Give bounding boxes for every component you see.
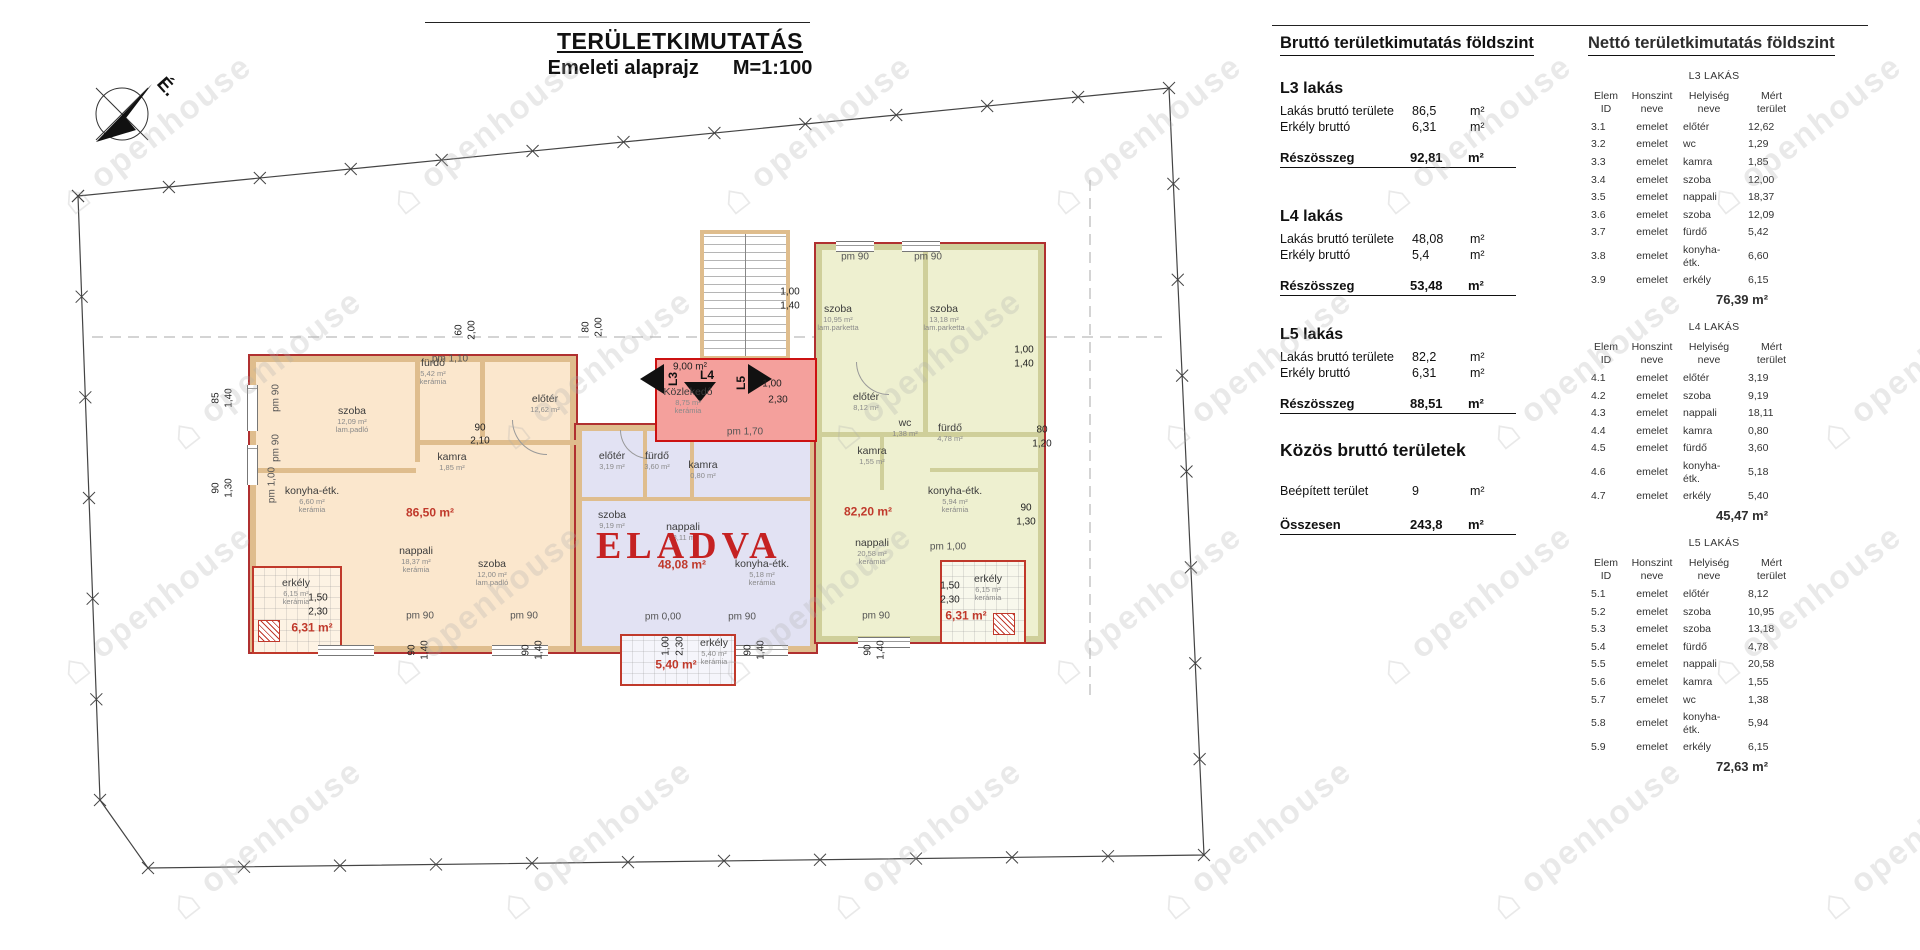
interior-wall [420,440,576,445]
interior-wall [582,497,810,501]
netto-row: 3.3emelet kamra1,85 [1588,153,1805,171]
netto-row: 5.1emelet előtér8,12 [1588,585,1805,603]
entry-arrow-l5 [748,364,772,394]
page-title: TERÜLETKIMUTATÁS [470,28,890,55]
balcony-drain-hatch [258,620,280,642]
door-label-l4: L4 [700,368,714,382]
netto-row: 5.7emelet wc1,38 [1588,691,1805,709]
netto-row: 5.4emelet fürdő4,78 [1588,638,1805,656]
netto-row: 3.9emelet erkély6,15 [1588,272,1805,290]
netto-table-l3: L3 LAKÁS Elem IDHonszint neve Helyiség n… [1588,70,1840,307]
brutto-row: Lakás bruttó területe48,08m² [1280,231,1550,247]
plan-label-dim: 60 [454,324,465,335]
netto-heading: Nettó területkimutatás földszint [1588,34,1835,56]
netto-row: 4.4emelet kamra0,80 [1588,422,1805,440]
page-subtitle: Emeleti alaprajz [548,57,699,80]
netto-table-header: Elem IDHonszint neve Helyiség neveMért t… [1588,555,1805,585]
netto-total-l3: 76,39 m² [1716,292,1840,307]
entry-arrow-l3 [640,364,664,394]
subtotal-row: Részösszeg 88,51 m² [1280,396,1516,414]
common-areas-heading: Közös bruttó területek [1280,440,1550,461]
plan-label-dim: 1,30 [224,478,235,497]
window [247,445,258,485]
corridor [655,358,817,442]
netto-table-header: Elem IDHonszint neve Helyiség neveMért t… [1588,88,1805,118]
interior-wall [822,432,1038,437]
netto-table-header: Elem IDHonszint neve Helyiség neveMért t… [1588,339,1805,369]
brutto-row: Lakás bruttó területe86,5m² [1280,103,1550,119]
netto-row: 4.1emelet előtér3,19 [1588,369,1805,387]
brutto-section-l5: L5 lakás Lakás bruttó területe82,2m² Erk… [1280,326,1550,414]
window [736,645,788,656]
brutto-row: Erkély bruttó5,4m² [1280,247,1550,263]
plan-label-dim: 90 [211,482,222,493]
window [902,241,940,252]
netto-total-l4: 45,47 m² [1716,508,1840,523]
netto-row: 4.5emelet fürdő3,60 [1588,440,1805,458]
brutto-column: Bruttó területkimutatás földszint L3 lak… [1280,34,1550,535]
netto-row: 4.3emelet nappali18,11 [1588,405,1805,423]
sold-status-label: ELADVA [596,524,776,568]
brutto-heading: Bruttó területkimutatás földszint [1280,34,1534,56]
netto-table-l5: L5 LAKÁS Elem IDHonszint neve Helyiség n… [1588,537,1840,774]
netto-row: 5.8emelet konyha-étk.5,94 [1588,709,1805,739]
netto-row: 3.2emelet wc1,29 [1588,136,1805,154]
netto-column: Nettó területkimutatás földszint L3 LAKÁ… [1588,34,1840,774]
netto-row: 4.7emelet erkély5,40 [1588,488,1805,506]
entry-arrow-l4 [684,382,716,402]
plan-label-dim: 1,40 [224,388,235,407]
grand-total-row: Összesen 243,8 m² [1280,517,1516,535]
door-label-l5: L5 [734,376,748,390]
netto-total-l5: 72,63 m² [1716,759,1840,774]
interior-wall [480,362,485,437]
netto-row: 3.1emelet előtér12,62 [1588,118,1805,136]
window [247,385,258,431]
netto-row: 3.8emelet konyha-étk.6,60 [1588,241,1805,271]
door-label-l3: L3 [666,372,680,386]
plan-label-dim: 85 [211,392,222,403]
section-title: L4 lakás [1280,208,1550,226]
netto-row: 5.9emelet erkély6,15 [1588,739,1805,757]
brutto-section-l4: L4 lakás Lakás bruttó területe48,08m² Er… [1280,208,1550,296]
window [318,645,374,656]
netto-row: 4.6emelet konyha-étk.5,18 [1588,457,1805,487]
interior-wall [415,362,420,462]
brutto-row: Erkély bruttó6,31m² [1280,365,1550,381]
subtotal-row: Részösszeg 53,48 m² [1280,278,1516,296]
brutto-row: Erkély bruttó6,31m² [1280,119,1550,135]
stairwell [700,230,790,360]
netto-row: 5.5emelet nappali20,58 [1588,656,1805,674]
brutto-section-l3: L3 lakás Lakás bruttó területe86,5m² Erk… [1280,80,1550,168]
section-title: L5 lakás [1280,326,1550,344]
drawing-scale: M=1:100 [733,57,813,80]
window [836,241,874,252]
window [858,637,910,648]
interior-wall [930,468,1038,472]
balcony-l4 [620,634,736,686]
netto-row: 4.2emelet szoba9,19 [1588,387,1805,405]
balcony-drain-hatch [993,613,1015,635]
netto-row: 3.5emelet nappali18,37 [1588,189,1805,207]
interior-wall [256,468,416,473]
netto-row: 3.6emelet szoba12,09 [1588,206,1805,224]
plan-label-dim: 2,00 [467,320,478,339]
subtotal-row: Részösszeg 92,81 m² [1280,150,1516,168]
window [492,645,548,656]
netto-row: 3.4emelet szoba12,00 [1588,171,1805,189]
built-in-area-row: Beépített terület 9 m² [1280,483,1550,499]
netto-row: 3.7emelet fürdő5,42 [1588,224,1805,242]
interior-wall [880,432,884,490]
netto-row: 5.2emelet szoba10,95 [1588,603,1805,621]
plan-label-dim: 2,00 [594,317,605,336]
plan-label-dim: 80 [581,321,592,332]
title-block: TERÜLETKIMUTATÁS Emeleti alaprajz M=1:10… [470,28,890,80]
netto-row: 5.6emelet kamra1,55 [1588,673,1805,691]
netto-row: 5.3emelet szoba13,18 [1588,621,1805,639]
netto-table-l4: L4 LAKÁS Elem IDHonszint neve Helyiség n… [1588,321,1840,523]
interior-wall [923,250,928,432]
brutto-row: Lakás bruttó területe82,2m² [1280,349,1550,365]
section-title: L3 lakás [1280,80,1550,98]
